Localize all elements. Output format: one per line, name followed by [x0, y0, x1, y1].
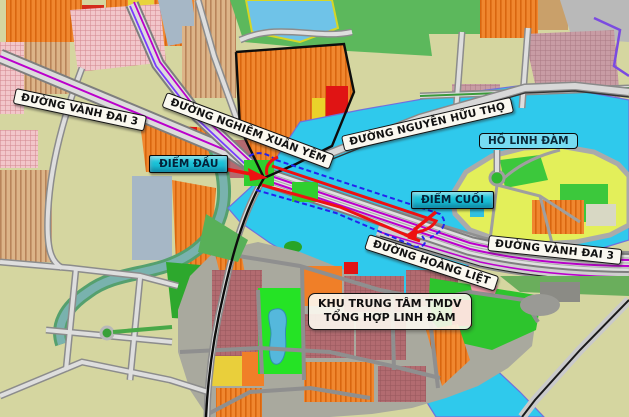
- park-pond: [269, 309, 287, 364]
- khu-trung-tam-line1: KHU TRUNG TÂM TMDV: [318, 297, 462, 310]
- label-khu-trung-tam: KHU TRUNG TÂM TMDV TỔNG HỢP LINH ĐÀM: [308, 293, 472, 330]
- roundabout-small: [101, 327, 113, 339]
- marker-diem-cuoi: ĐIỂM CUỐI: [411, 191, 494, 209]
- khu-trung-tam-line2: TỔNG HỢP LINH ĐÀM: [324, 311, 456, 324]
- planning-map: ĐƯỜNG VÀNH ĐAI 3 ĐƯỜNG NGHIÊM XUÂN YÊM Đ…: [0, 0, 629, 417]
- gray-lot: [520, 294, 560, 316]
- marker-diem-dau: ĐIỂM ĐẦU: [149, 155, 228, 173]
- label-ho-linh-dam: HỒ LINH ĐÀM: [479, 133, 578, 149]
- roundabout: [490, 171, 504, 185]
- map-canvas: [0, 0, 629, 417]
